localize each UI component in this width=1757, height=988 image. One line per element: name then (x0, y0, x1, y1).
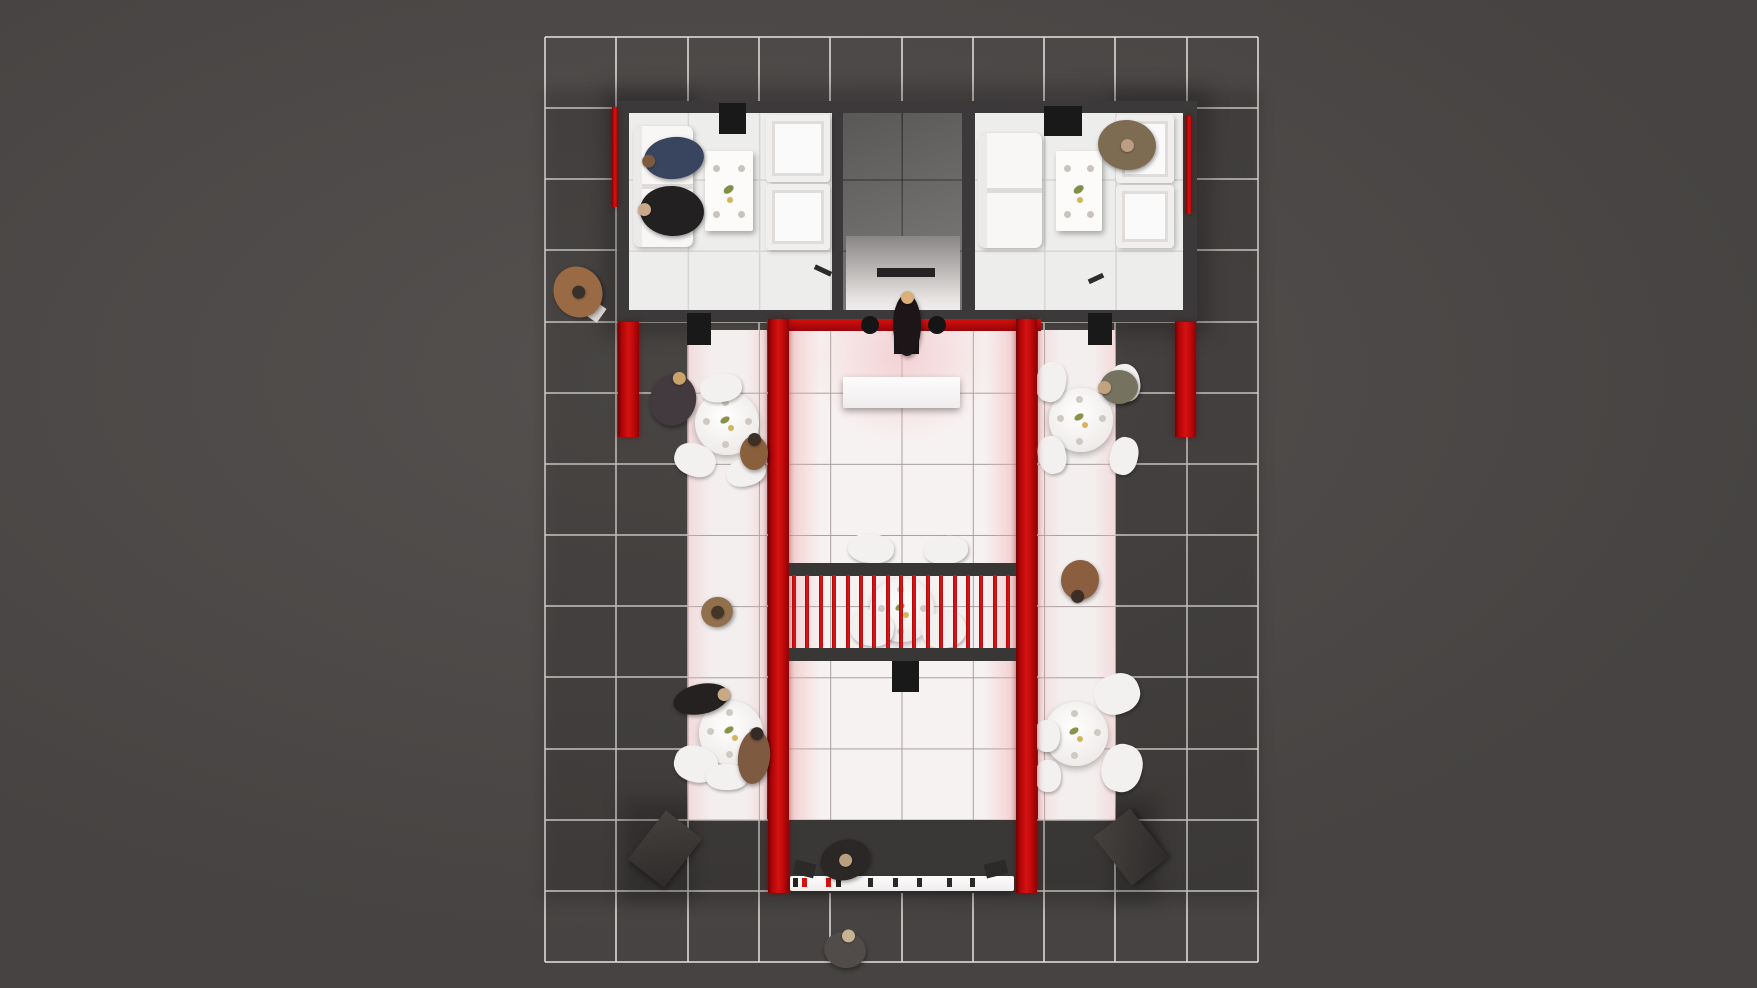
visitor-right-wing (1058, 557, 1102, 603)
visitor-table-sw (670, 679, 731, 720)
exhibition-stand-render-viewport[interactable] (0, 0, 1757, 988)
person-head (748, 433, 761, 446)
visitor-seated-black-suit (638, 184, 705, 238)
visitor-table-nw (644, 369, 702, 431)
person-head (901, 291, 914, 304)
person-head (638, 202, 652, 216)
person-head (1098, 381, 1111, 394)
people (0, 0, 1757, 988)
stand-scene (0, 0, 1757, 988)
visitor-walking-left-wing (697, 592, 737, 631)
visitor-walking-top-left (544, 257, 612, 326)
person-head (1070, 589, 1085, 604)
visitor-table-ne (1100, 370, 1138, 404)
person-head (1120, 138, 1134, 152)
visitor-table-nw-2 (740, 436, 768, 470)
visitor-seated-navy (642, 134, 706, 182)
hostess-reception (893, 294, 921, 356)
visitor-table-sw-2 (735, 728, 772, 785)
visitor-seated-brown (1096, 117, 1159, 173)
visitor-walking-outside (821, 928, 870, 972)
visitor-walking-bottom (815, 833, 875, 886)
